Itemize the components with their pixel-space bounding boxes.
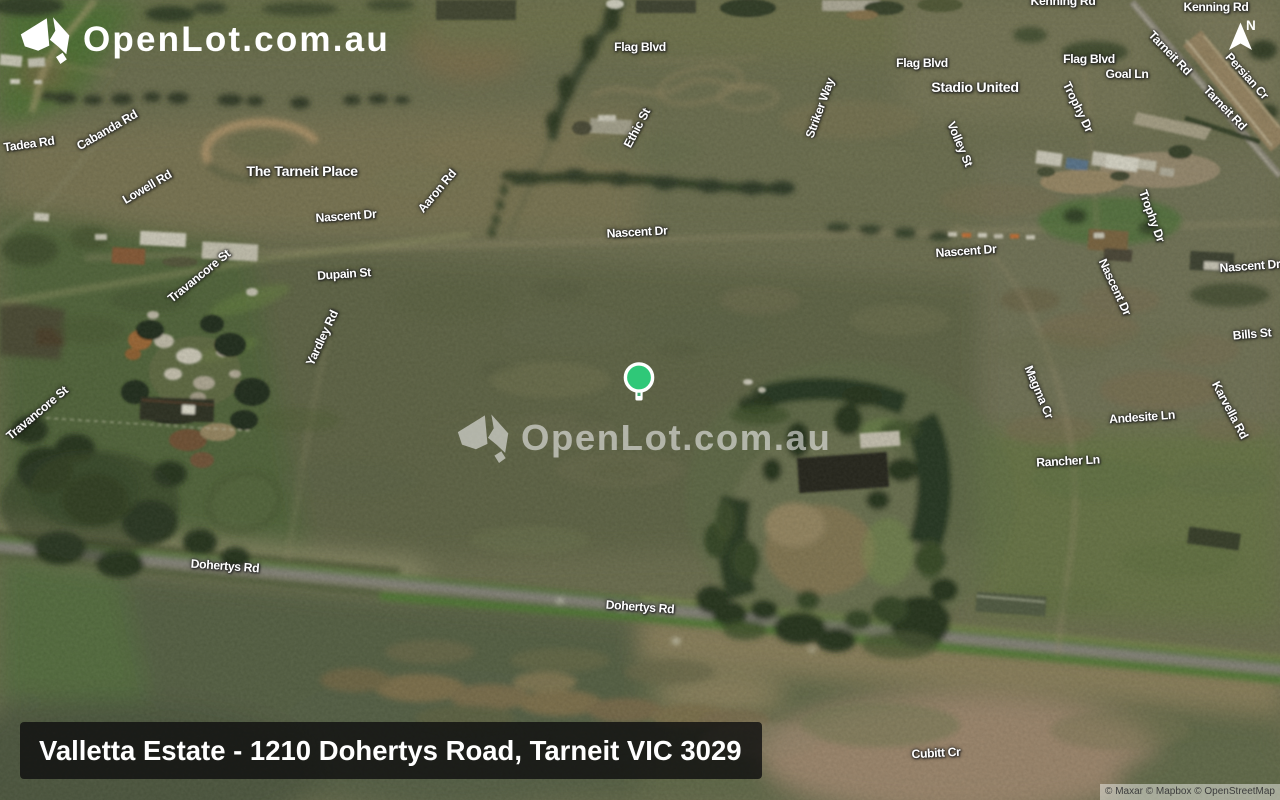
- svg-text:N: N: [1246, 18, 1256, 33]
